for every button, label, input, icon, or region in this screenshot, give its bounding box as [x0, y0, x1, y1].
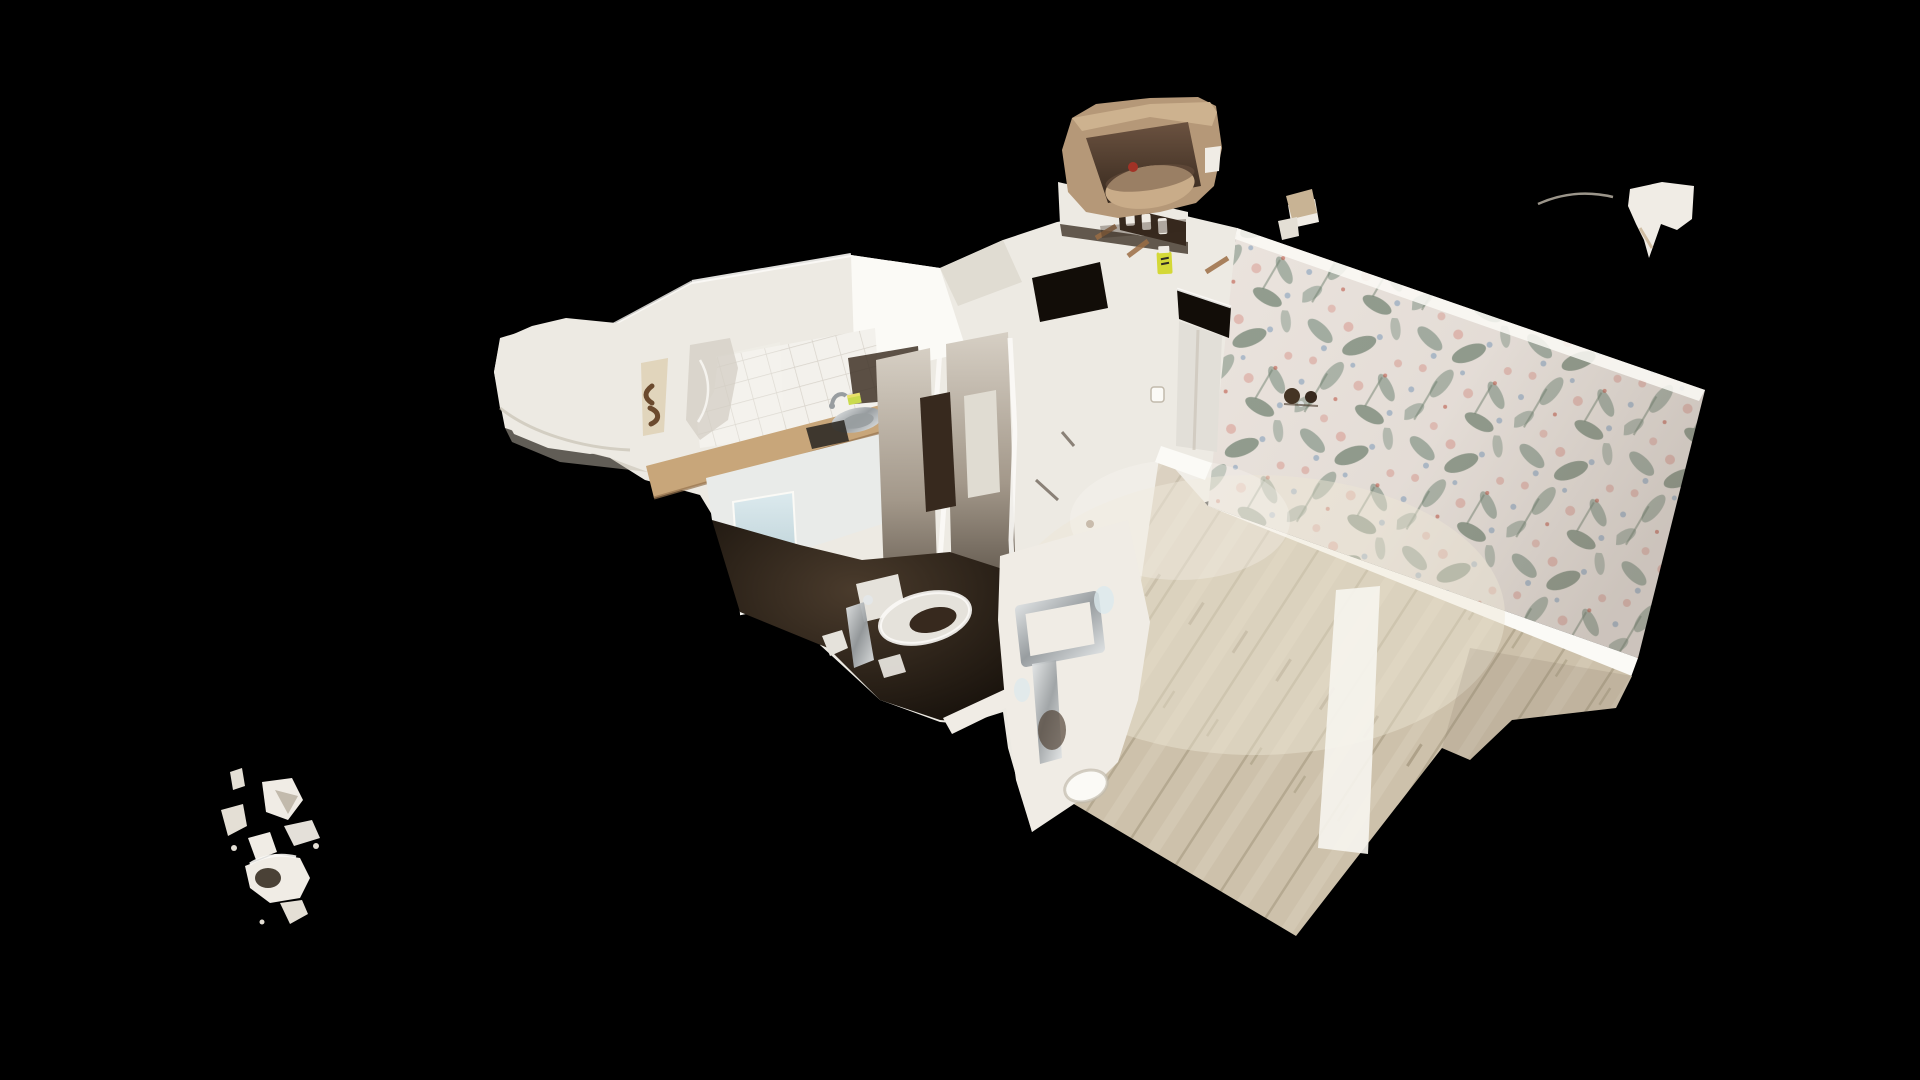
dollhouse-viewport[interactable]: [0, 0, 1920, 1080]
red-indicator-dot: [1128, 162, 1138, 172]
debris-dark-hole: [255, 868, 281, 888]
heater-white-tab: [1205, 146, 1221, 173]
faucet-base: [829, 403, 835, 409]
wall-lamp-shade: [1305, 391, 1317, 403]
white-pillar-fragment: [964, 390, 1000, 498]
apartment-3d-model: [0, 0, 1920, 1080]
fragment-dark-notch: [1038, 710, 1066, 750]
cyan-reflection-2: [1014, 678, 1030, 702]
debris-speck: [231, 845, 237, 851]
dark-wall-slit: [920, 392, 956, 512]
chrome-valve: [863, 595, 873, 605]
wall-lamp: [1284, 388, 1300, 404]
spray-bottle-cap: [1158, 246, 1169, 254]
debris-speck: [260, 920, 265, 925]
debris-speck: [313, 843, 319, 849]
cyan-reflection-1: [1094, 586, 1114, 614]
light-switch: [1151, 387, 1164, 402]
